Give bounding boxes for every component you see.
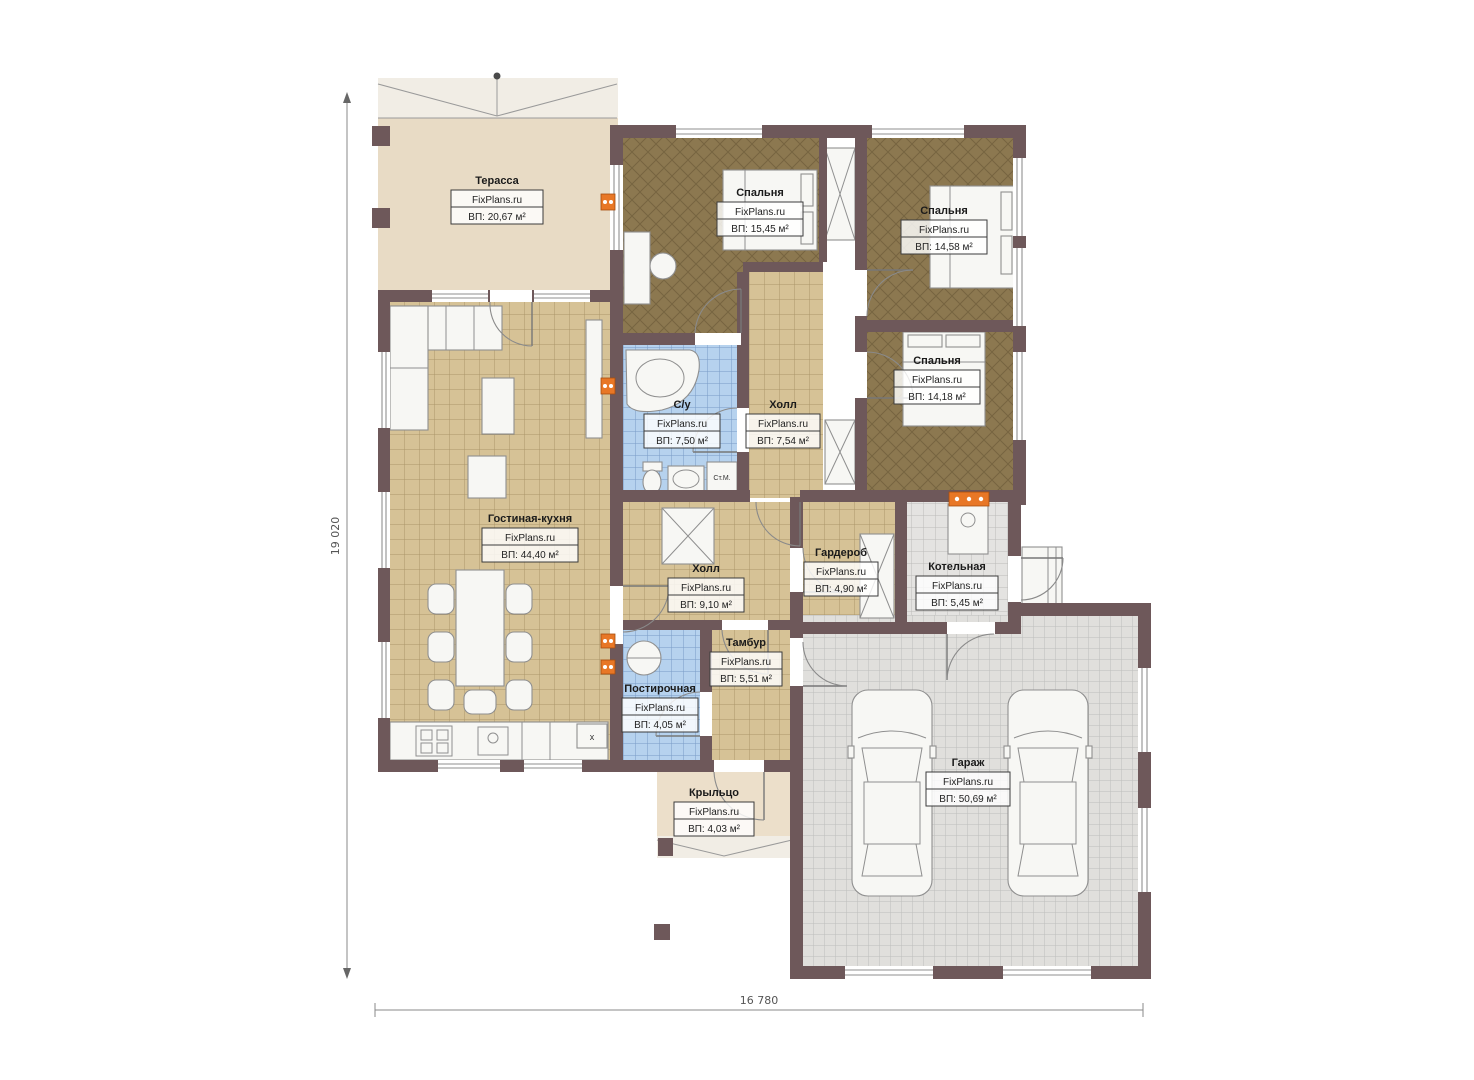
room-area: ВП: 4,05 м² (634, 720, 687, 731)
room-name: Холл (769, 399, 797, 411)
room-name: Гардероб (815, 547, 867, 559)
room-area: ВП: 4,90 м² (815, 584, 868, 595)
room-brand: FixPlans.ru (943, 777, 993, 788)
room-area: ВП: 5,45 м² (931, 598, 984, 609)
room-name: С/у (673, 399, 691, 411)
radiator-icon (601, 378, 615, 394)
garage-door (845, 966, 933, 979)
room-label-boiler: Котельная FixPlans.ru ВП: 5,45 м² (916, 561, 998, 610)
room-area: ВП: 14,58 м² (915, 242, 973, 253)
room-name: Постирочная (624, 683, 695, 695)
window (676, 125, 762, 138)
window (378, 642, 390, 718)
closet (825, 420, 855, 484)
radiator-icon (601, 194, 615, 210)
window (1138, 668, 1151, 752)
window (524, 760, 582, 772)
room-brand: FixPlans.ru (932, 581, 982, 592)
window (378, 492, 390, 568)
terrace-column (372, 208, 390, 228)
kitchen-counter: х (390, 722, 608, 760)
room-brand: FixPlans.ru (681, 583, 731, 594)
boiler (948, 504, 988, 554)
radiator-icon (601, 660, 615, 674)
room-label-wardrobe: Гардероб FixPlans.ru ВП: 4,90 м² (804, 547, 878, 596)
floor-vestibule (712, 630, 790, 760)
room-name: Котельная (928, 561, 986, 573)
window (1013, 158, 1026, 236)
room-area: ВП: 9,10 м² (680, 600, 733, 611)
window (1013, 352, 1026, 440)
room-name: Спальня (913, 355, 961, 367)
room-area: ВП: 14,18 м² (908, 392, 966, 403)
room-area: ВП: 44,40 м² (501, 550, 559, 561)
sink (668, 466, 704, 492)
room-brand: FixPlans.ru (758, 419, 808, 430)
room-brand: FixPlans.ru (689, 807, 739, 818)
radiator-icon (949, 492, 989, 506)
room-brand: FixPlans.ru (735, 207, 785, 218)
window (378, 352, 390, 428)
room-label-laundry: Постирочная FixPlans.ru ВП: 4,05 м² (622, 683, 698, 732)
room-area: ВП: 20,67 м² (468, 212, 526, 223)
floor-plan-page: 19 020 16 780 (0, 0, 1474, 1080)
dining-table (456, 570, 504, 686)
window (1138, 808, 1151, 892)
desk (624, 232, 650, 304)
room-brand: FixPlans.ru (472, 195, 522, 206)
room-name: Гараж (952, 757, 985, 769)
coffee-table (482, 378, 514, 434)
room-name: Спальня (920, 205, 968, 217)
dimension-horizontal: 16 780 (375, 994, 1143, 1017)
laundry-sink (627, 641, 661, 675)
car (1004, 690, 1092, 896)
room-brand: FixPlans.ru (635, 703, 685, 714)
kitchen-mark: х (590, 732, 595, 742)
room-brand: FixPlans.ru (505, 533, 555, 544)
washing-machine-label: Ст.М. (713, 475, 730, 482)
room-area: ВП: 7,50 м² (656, 436, 709, 447)
room-brand: FixPlans.ru (816, 567, 866, 578)
closet (825, 148, 855, 240)
washing-machine: Ст.М. (707, 462, 737, 492)
room-area: ВП: 4,03 м² (688, 824, 741, 835)
window (438, 760, 500, 772)
porch-column (658, 838, 673, 856)
floor-hall-upper (743, 272, 823, 498)
radiator-icon (601, 634, 615, 648)
room-label-living-kitchen: Гостиная-кухня FixPlans.ru ВП: 44,40 м² (482, 513, 578, 562)
room-brand: FixPlans.ru (721, 657, 771, 668)
room-area: ВП: 15,45 м² (731, 224, 789, 235)
dim-vertical-label: 19 020 (329, 517, 342, 556)
room-area: ВП: 5,51 м² (720, 674, 773, 685)
room-brand: FixPlans.ru (657, 419, 707, 430)
floor-plan: 19 020 16 780 (0, 0, 1474, 1080)
window (432, 290, 488, 302)
dimension-vertical: 19 020 (329, 92, 351, 979)
window (534, 290, 590, 302)
room-name: Терасса (475, 175, 519, 187)
tv-stand (586, 320, 602, 438)
room-name: Спальня (736, 187, 784, 199)
desk-chair (650, 253, 676, 279)
closet (662, 508, 714, 564)
room-name: Холл (692, 563, 720, 575)
window (1013, 248, 1026, 326)
room-brand: FixPlans.ru (919, 225, 969, 236)
room-name: Тамбур (726, 637, 766, 649)
garage-door (1003, 966, 1091, 979)
dim-horizontal-label: 16 780 (740, 994, 779, 1007)
room-name: Гостиная-кухня (488, 513, 572, 525)
room-name: Крыльцо (689, 787, 739, 799)
car (848, 690, 936, 896)
terrace-column (372, 126, 390, 146)
window (872, 125, 964, 138)
room-brand: FixPlans.ru (912, 375, 962, 386)
room-area: ВП: 50,69 м² (939, 794, 997, 805)
site-column (654, 924, 670, 940)
room-area: ВП: 7,54 м² (757, 436, 810, 447)
toilet (643, 462, 662, 494)
cabinet (468, 456, 506, 498)
